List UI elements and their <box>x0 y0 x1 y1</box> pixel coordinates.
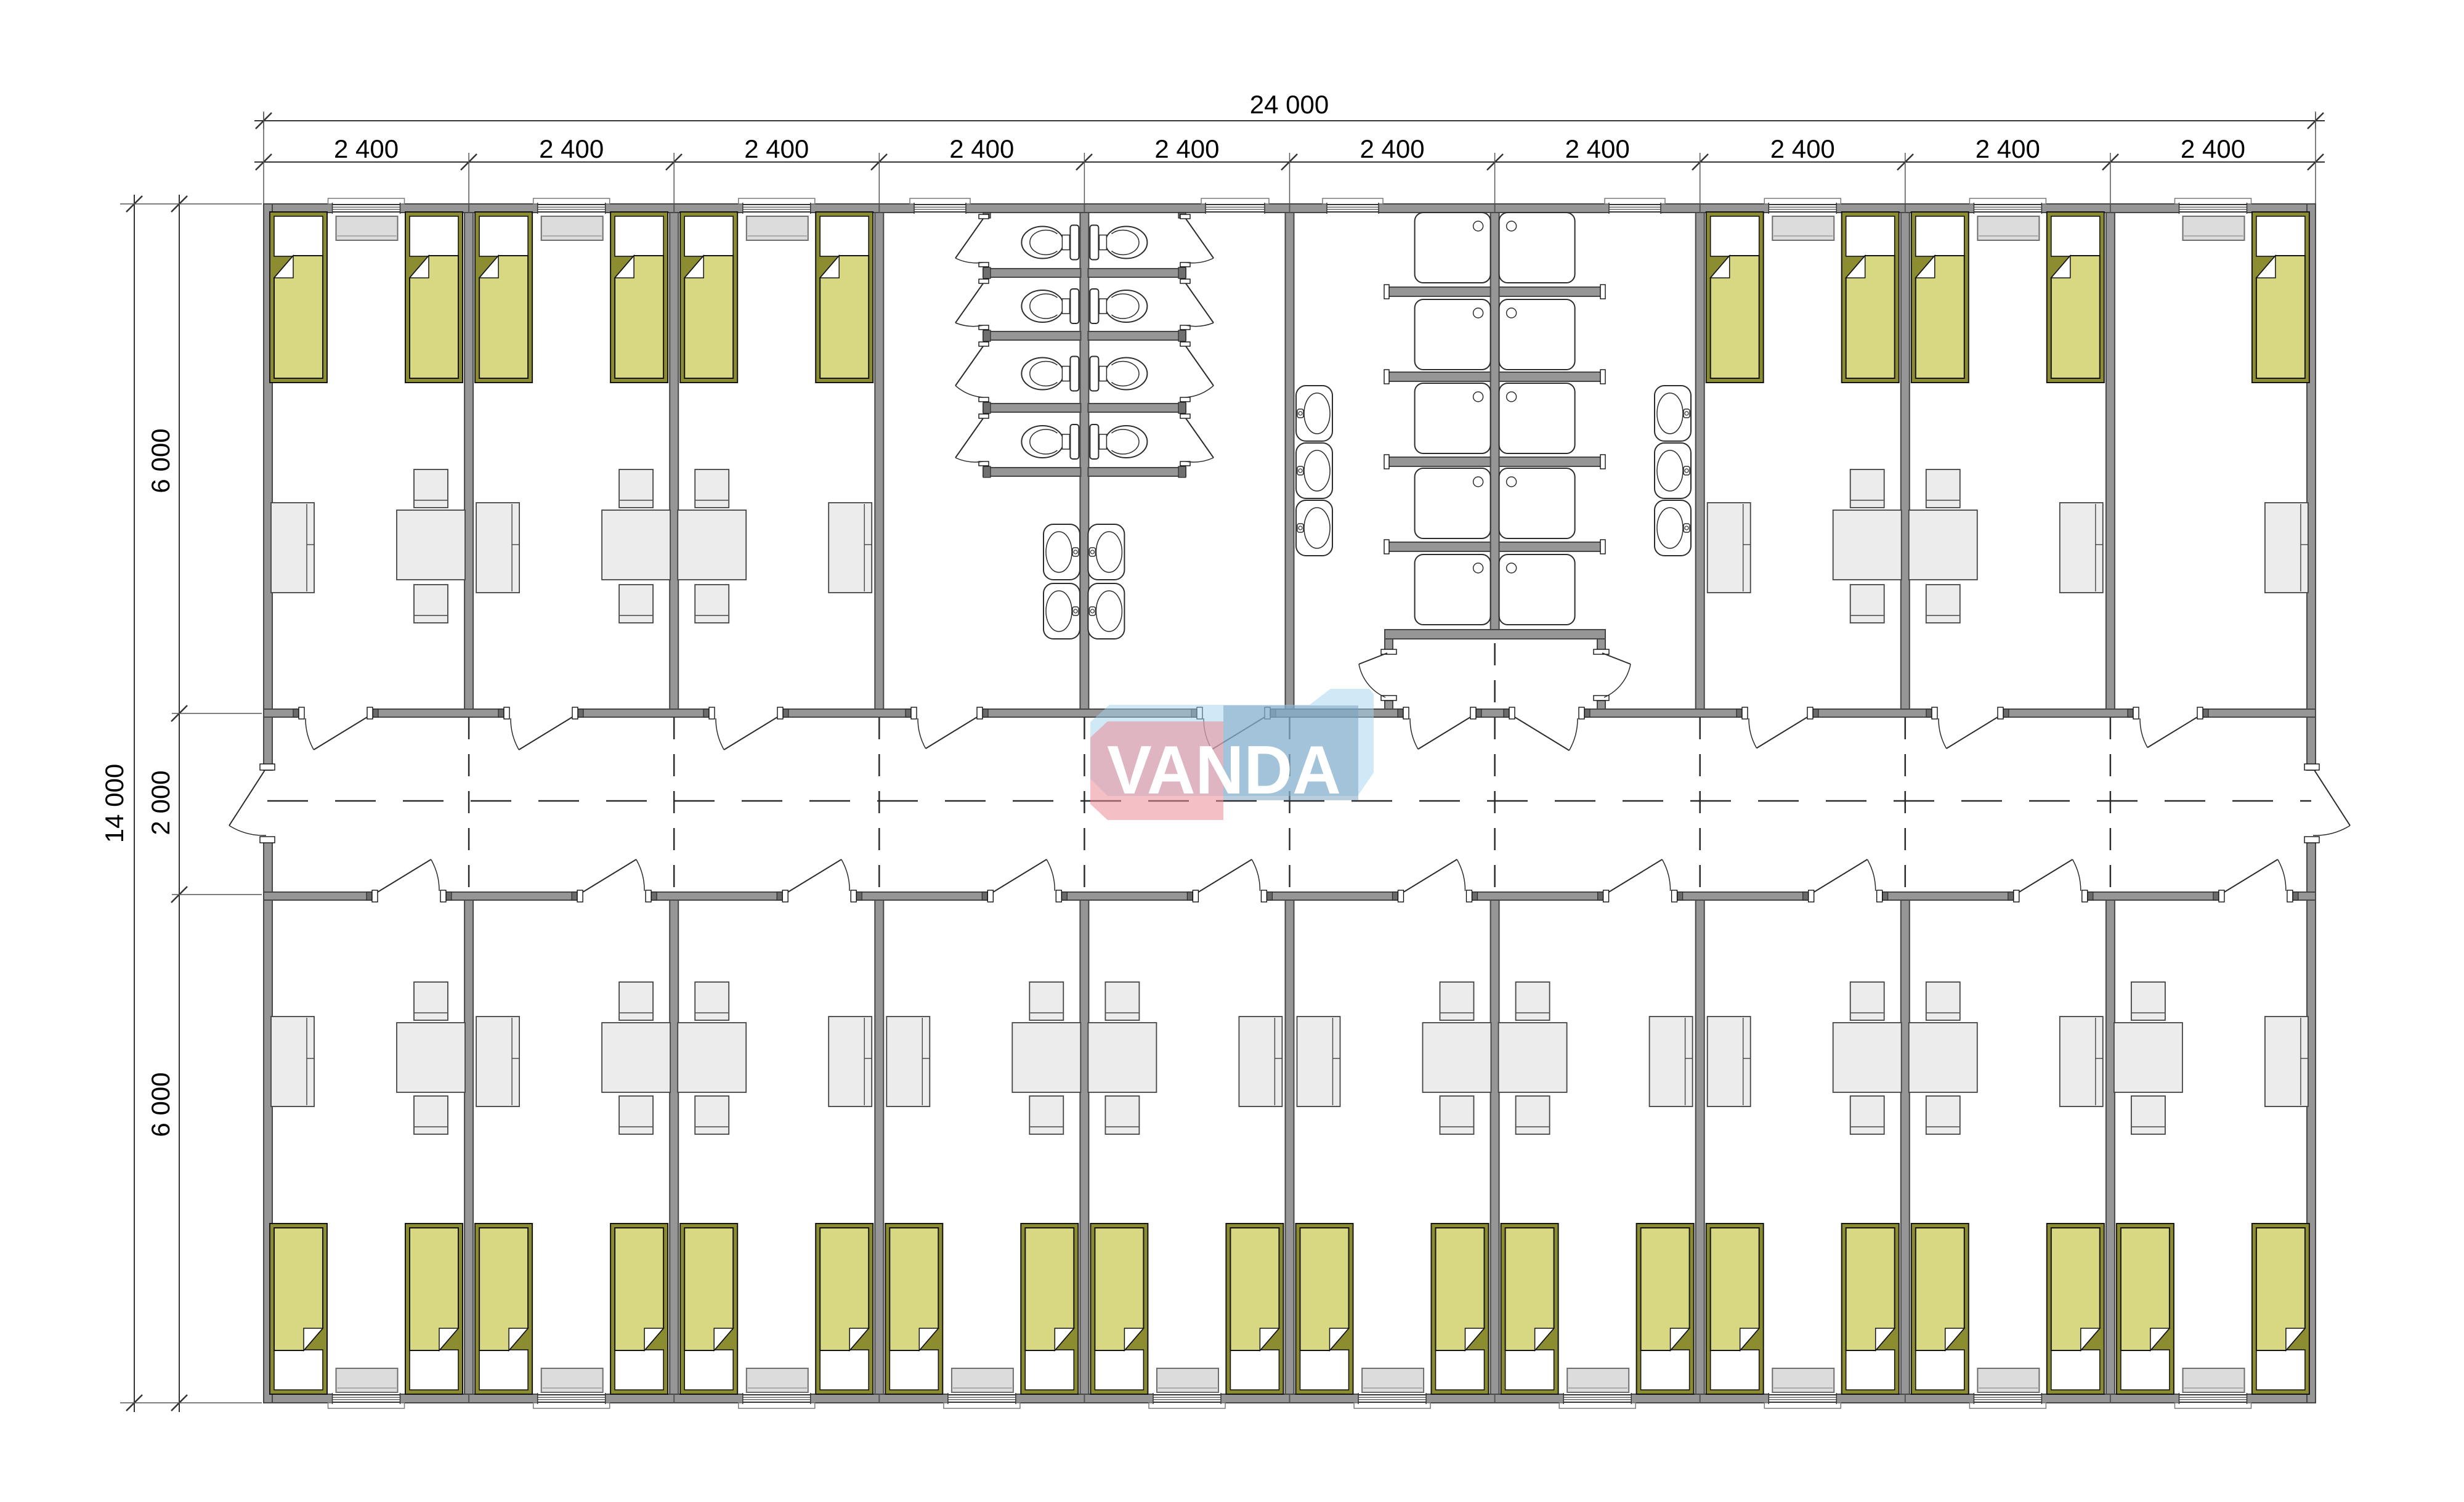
svg-text:2 400: 2 400 <box>539 134 604 163</box>
svg-text:6 000: 6 000 <box>146 428 175 493</box>
svg-text:2 400: 2 400 <box>744 134 809 163</box>
svg-text:2 000: 2 000 <box>146 770 175 835</box>
svg-text:VANDA: VANDA <box>1107 732 1341 808</box>
svg-text:2 400: 2 400 <box>2181 134 2245 163</box>
svg-text:2 400: 2 400 <box>1565 134 1630 163</box>
svg-text:2 400: 2 400 <box>1770 134 1835 163</box>
svg-text:14 000: 14 000 <box>100 764 129 843</box>
svg-text:2 400: 2 400 <box>1154 134 1219 163</box>
svg-text:2 400: 2 400 <box>1360 134 1424 163</box>
svg-text:24 000: 24 000 <box>1250 90 1329 119</box>
svg-text:2 400: 2 400 <box>1976 134 2040 163</box>
svg-text:2 400: 2 400 <box>334 134 399 163</box>
svg-text:2 400: 2 400 <box>949 134 1014 163</box>
svg-text:6 000: 6 000 <box>146 1072 175 1137</box>
